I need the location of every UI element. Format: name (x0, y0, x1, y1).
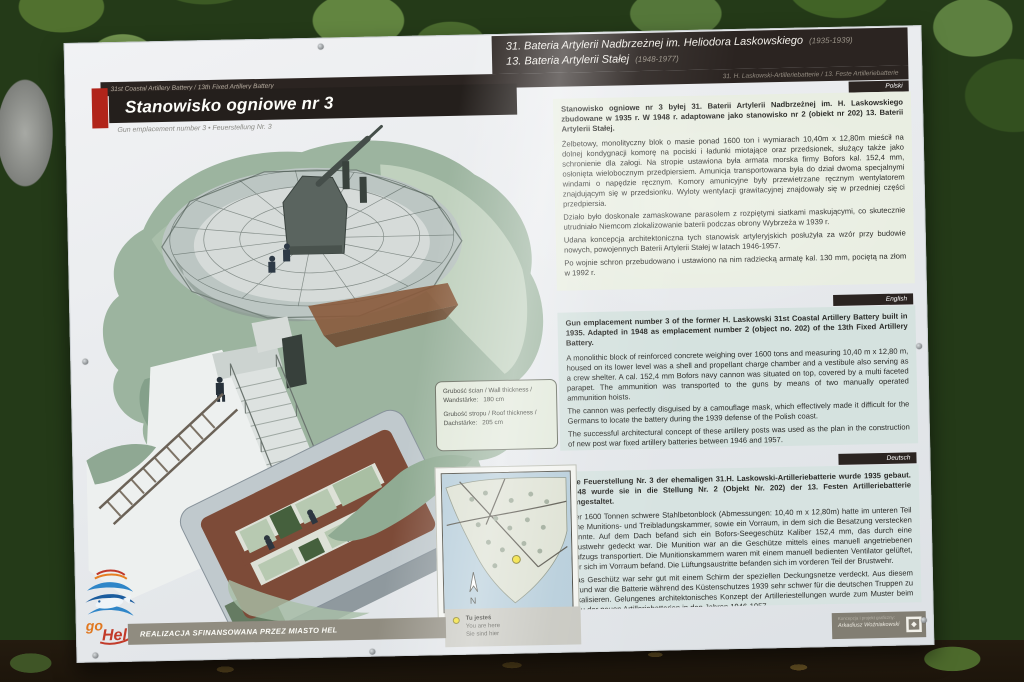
polish-intro: Stanowisko ogniowe nr 3 byłej 31. Bateri… (561, 97, 904, 134)
map-legend: Tu jesteś You are here Sie sind hier (445, 606, 582, 647)
location-map-inset: N (435, 464, 580, 619)
english-paragraph: The successful architectural concept of … (568, 423, 910, 450)
you-are-here-dot-icon (453, 617, 460, 624)
language-tag-english: English (833, 293, 913, 306)
text-block-german: Die Feuerstellung Nr. 3 der ehemaligen 3… (561, 464, 922, 609)
text-block-polish: Stanowisko ogniowe nr 3 byłej 31. Bateri… (553, 91, 915, 290)
wall-thickness-value: 180 cm (483, 395, 504, 402)
screw-icon (369, 649, 375, 655)
battery-name-de: 31. H. Laskowski-Artilleriebatterie / 13… (723, 69, 899, 80)
roof-thickness-label: Grubość stropu / Roof thickness / Dachst… (443, 409, 549, 428)
roof-thickness-value: 205 cm (482, 418, 503, 425)
english-intro: Gun emplacement number 3 of the former H… (565, 311, 908, 348)
logo-text-go: go (85, 617, 104, 633)
you-are-here-dot (512, 555, 520, 563)
german-paragraph: Der 1600 Tonnen schwere Stahlbetonblock … (570, 505, 913, 572)
screw-icon (921, 617, 927, 623)
wall-thickness-label: Grubość ścian / Wall thickness / Wandstä… (443, 386, 549, 405)
information-board-panel: 31. Bateria Artylerii Nadbrzeżnej im. He… (64, 25, 935, 663)
german-paragraph: Das Geschütz war sehr gut mit einem Schi… (571, 569, 914, 610)
credits-name: Arkadiusz Woźniakowski (838, 621, 902, 631)
battery-years-2: (1948-1977) (635, 55, 679, 65)
credits-bar: Koncepcja i projekt graficzny: Arkadiusz… (832, 611, 927, 639)
screw-icon (916, 343, 922, 349)
german-intro: Die Feuerstellung Nr. 3 der ehemaligen 3… (569, 470, 912, 507)
rock (0, 58, 64, 208)
language-tag-deutsch: Deutsch (838, 452, 916, 465)
legend-de: Sie sind hier (466, 630, 500, 639)
ornament-icon (906, 616, 922, 632)
screw-icon (318, 44, 324, 50)
photo-of-information-board: 31. Bateria Artylerii Nadbrzeżnej im. He… (0, 0, 1024, 682)
svg-text:N: N (470, 596, 477, 606)
red-accent-bar (92, 88, 109, 128)
screw-icon (82, 359, 88, 365)
screw-icon (92, 652, 98, 658)
battery-years-1: (1935-1939) (809, 36, 853, 46)
polish-paragraph: Żelbetowy, monolityczny blok o masie pon… (562, 133, 905, 210)
text-block-english: Gun emplacement number 3 of the former H… (557, 305, 918, 450)
thickness-labels-box: Grubość ścian / Wall thickness / Wandstä… (435, 379, 558, 452)
english-paragraph: A monolithic block of reinforced concret… (566, 346, 909, 403)
polish-paragraph: Po wojnie schron przebudowano i ustawion… (564, 252, 906, 279)
